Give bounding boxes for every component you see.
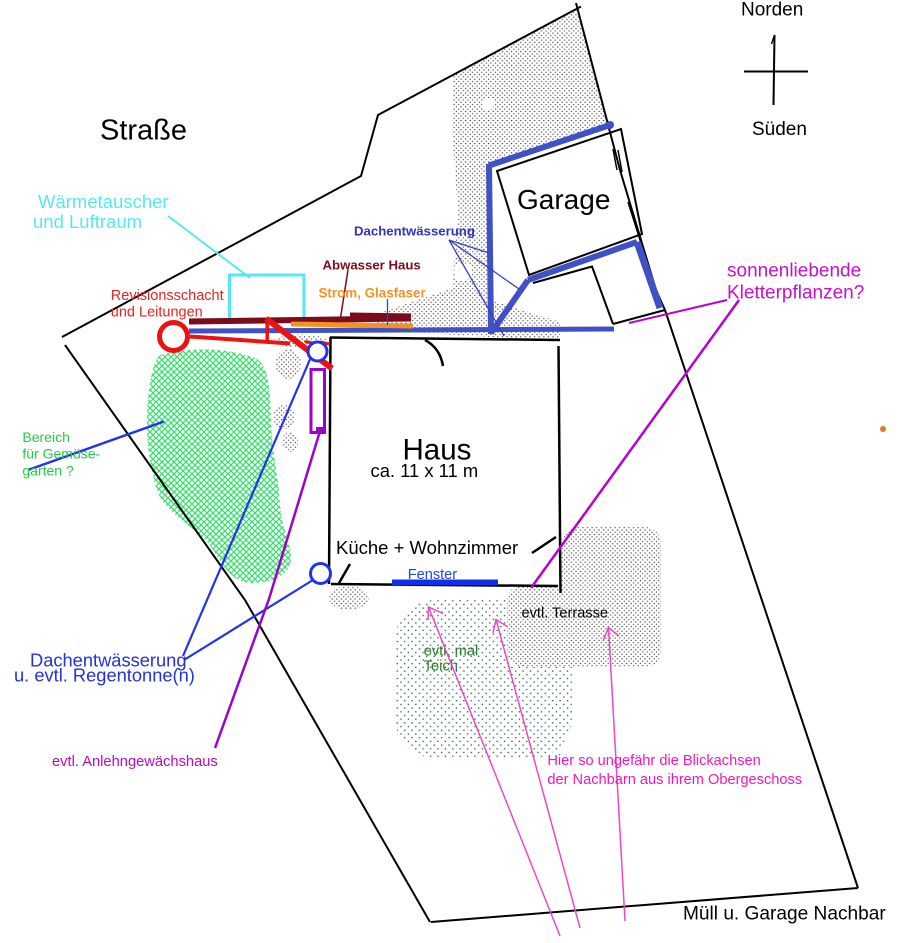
svg-text:Süden: Süden — [752, 119, 807, 140]
svg-text:Norden: Norden — [741, 0, 803, 21]
svg-text:und Luftraum: und Luftraum — [33, 211, 142, 232]
svg-text:Dachentwässerung: Dachentwässerung — [354, 224, 475, 239]
svg-text:garten ?: garten ? — [22, 462, 74, 478]
svg-text:Abwasser Haus: Abwasser Haus — [323, 258, 421, 273]
svg-text:Hier so ungefähr die Blickachs: Hier so ungefähr die Blickachsen — [547, 753, 760, 769]
svg-text:der Nachbarn aus ihrem Oberges: der Nachbarn aus ihrem Obergeschoss — [547, 772, 802, 788]
svg-text:Bereich: Bereich — [22, 429, 69, 445]
svg-text:Kletterpflanzen?: Kletterpflanzen? — [727, 283, 864, 304]
svg-text:sonnenliebende: sonnenliebende — [727, 261, 861, 282]
svg-text:Müll u. Garage Nachbar: Müll u. Garage Nachbar — [683, 904, 886, 925]
svg-text:Straße: Straße — [100, 115, 187, 147]
svg-text:Revisionsschacht: Revisionsschacht — [111, 288, 224, 304]
svg-text:Wärmetauscher: Wärmetauscher — [38, 191, 169, 212]
svg-text:Küche + Wohnzimmer: Küche + Wohnzimmer — [336, 537, 518, 558]
svg-text:Garage: Garage — [517, 184, 610, 215]
svg-text:für Gemüse-: für Gemüse- — [22, 446, 100, 462]
svg-text:u. evtl. Regentonne(n): u. evtl. Regentonne(n) — [14, 665, 195, 686]
svg-text:Fenster: Fenster — [408, 567, 458, 583]
svg-text:evtl. mal: evtl. mal — [424, 644, 479, 660]
svg-text:evtl. Terrasse: evtl. Terrasse — [522, 606, 609, 622]
svg-text:Strom, Glasfaser: Strom, Glasfaser — [319, 286, 427, 301]
svg-text:und Leitungen: und Leitungen — [111, 305, 203, 321]
svg-text:ca. 11 x 11 m: ca. 11 x 11 m — [371, 460, 479, 481]
svg-text:evtl. Anlehngewächshaus: evtl. Anlehngewächshaus — [52, 754, 218, 770]
